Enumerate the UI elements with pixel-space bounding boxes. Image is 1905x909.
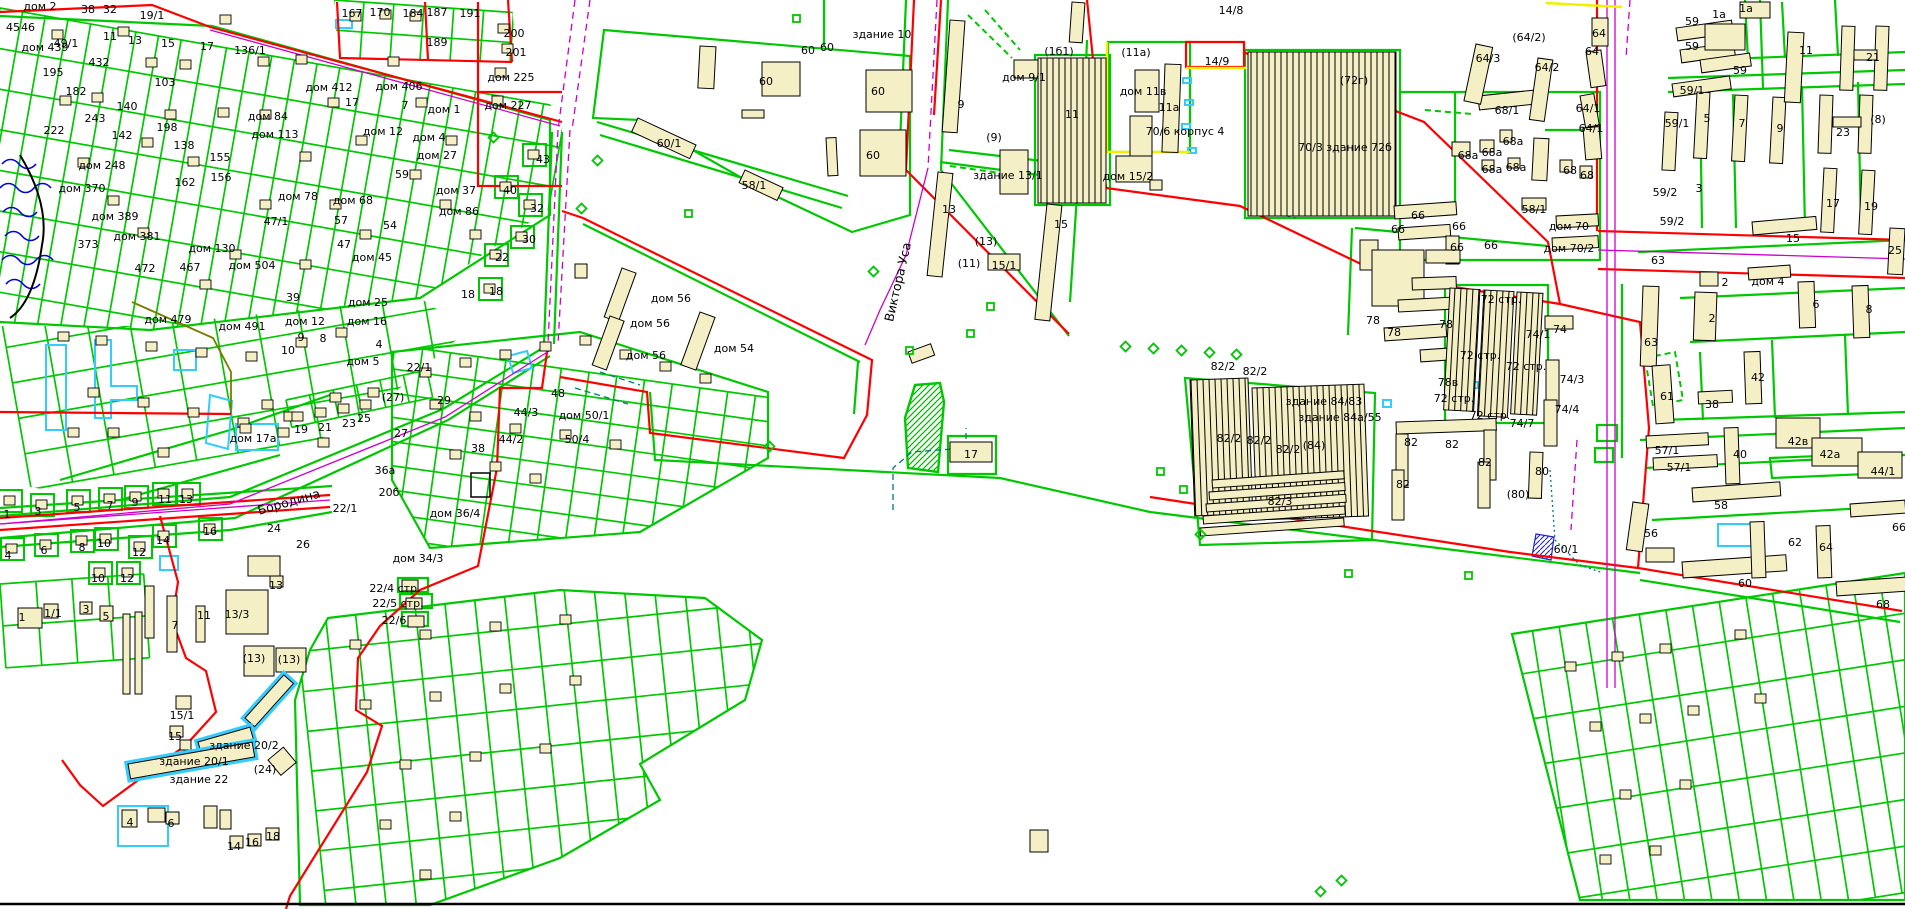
map-label: 64 — [1819, 541, 1833, 554]
building[interactable] — [1532, 138, 1549, 181]
map-label: 13 — [179, 493, 193, 506]
map-label: 155 — [210, 151, 231, 164]
map-label: 138 — [174, 139, 195, 152]
map-label: 9 — [1777, 122, 1784, 135]
map-label: 82 — [1445, 438, 1459, 451]
house[interactable] — [410, 170, 421, 179]
map-label: 74/4 — [1555, 403, 1580, 416]
map-label: 70/3 здание 72б — [1298, 141, 1392, 154]
map-label: 63 — [1651, 254, 1665, 267]
map-label: дом 504 — [228, 259, 275, 272]
house[interactable] — [380, 820, 391, 829]
house[interactable] — [220, 15, 231, 24]
map-label: 20б — [379, 486, 400, 499]
map-label: 182 — [66, 85, 87, 98]
map-label: 18 — [266, 830, 280, 843]
map-label: дом 2 — [23, 0, 56, 13]
building[interactable] — [220, 810, 231, 829]
building[interactable] — [742, 110, 764, 118]
building[interactable] — [204, 806, 217, 828]
map-label: дом 56 — [630, 317, 670, 330]
map-label: 17 — [345, 96, 359, 109]
map-label: 38 — [81, 3, 95, 16]
map-label: 19/1 — [140, 9, 165, 22]
house[interactable] — [1612, 652, 1623, 661]
house[interactable] — [470, 230, 481, 239]
map-label: 10 — [91, 572, 105, 585]
house[interactable] — [1660, 644, 1671, 653]
map-label: 14/9 — [1205, 55, 1230, 68]
map-label: 17 — [964, 448, 978, 461]
house[interactable] — [470, 412, 481, 421]
map-label: дом 248 — [78, 159, 125, 172]
house[interactable] — [92, 93, 103, 102]
house[interactable] — [258, 57, 269, 66]
house[interactable] — [88, 388, 99, 397]
building[interactable] — [135, 612, 142, 694]
map-label: 61 — [1660, 390, 1674, 403]
house[interactable] — [138, 398, 149, 407]
map-label: 191 — [460, 7, 481, 20]
house[interactable] — [530, 474, 541, 483]
house[interactable] — [158, 448, 169, 457]
house[interactable] — [188, 408, 199, 417]
map-label: 59/2 — [1653, 186, 1678, 199]
map-label: 189 — [427, 36, 448, 49]
building[interactable] — [1694, 92, 1710, 159]
map-label: 21 — [1866, 51, 1880, 64]
map-label: 9 — [298, 331, 305, 344]
map-label: дом 412 — [305, 81, 352, 94]
map-label: 14 — [156, 534, 170, 547]
map-label: 170 — [370, 6, 391, 19]
map-label: 22/1 — [407, 361, 432, 374]
house[interactable] — [360, 700, 371, 709]
map-label: 68 — [1876, 598, 1890, 611]
map-label: 59 — [1733, 64, 1747, 77]
map-label: 21 — [318, 421, 332, 434]
house[interactable] — [278, 428, 289, 437]
house[interactable] — [315, 408, 326, 417]
map-label: 11 — [103, 30, 117, 43]
map-label: 36а — [375, 464, 396, 477]
house[interactable] — [1755, 694, 1766, 703]
map-label: 68 — [1563, 164, 1577, 177]
map-label: 64 — [1585, 45, 1599, 58]
building[interactable] — [1398, 297, 1451, 312]
house[interactable] — [450, 812, 461, 821]
map-label: 42в — [1788, 435, 1808, 448]
map-label: 142 — [112, 129, 133, 142]
map-label: здание 22 — [170, 773, 229, 786]
house[interactable] — [300, 260, 311, 269]
map-label: 22 — [495, 251, 509, 264]
house[interactable] — [260, 200, 271, 209]
map-label: здание 20/1 — [159, 755, 229, 768]
house[interactable] — [188, 157, 199, 166]
map-label: 40 — [503, 184, 517, 197]
house[interactable] — [146, 58, 157, 67]
map-label: дом 12 — [285, 315, 325, 328]
map-label: 22/1 — [333, 502, 358, 515]
map-label: 59 — [1685, 40, 1699, 53]
map-label: 12 — [120, 572, 134, 585]
map-label: дом 70 — [1549, 220, 1589, 233]
map-label: 64/1 — [1576, 102, 1601, 115]
map-label: 60 — [801, 44, 815, 57]
map-label: 63 — [1644, 336, 1658, 349]
map-label: 17 — [200, 40, 214, 53]
house[interactable] — [580, 336, 591, 345]
map-label: (24) — [254, 763, 277, 776]
map-label: 5 — [1704, 112, 1711, 125]
map-label: дом 370 — [58, 182, 105, 195]
house[interactable] — [360, 400, 371, 409]
map-label: (13) — [975, 235, 998, 248]
house[interactable] — [490, 622, 501, 631]
building[interactable] — [1840, 26, 1855, 90]
house[interactable] — [165, 110, 176, 119]
house[interactable] — [1565, 662, 1576, 671]
house[interactable] — [218, 108, 229, 117]
map-label: дом 17а — [230, 432, 277, 445]
map-label: 6 — [168, 817, 175, 830]
map-label: (11а) — [1121, 46, 1150, 59]
map-label: 72 стр. — [1481, 293, 1521, 306]
map-label: 66 — [1892, 521, 1905, 534]
house[interactable] — [58, 332, 69, 341]
house[interactable] — [610, 440, 621, 449]
map-label: дом 50/1 — [559, 409, 610, 422]
map-label: 3 — [1696, 182, 1703, 195]
map-label: дом 4 — [1751, 275, 1784, 288]
map-label: здание 10 — [853, 28, 912, 41]
map-label: 74/7 — [1510, 417, 1535, 430]
cadastral-map[interactable]: дом 2383219/1454611131517136/1дом 43949/… — [0, 0, 1905, 909]
map-label: (27) — [382, 391, 405, 404]
map-label: 49/1 — [54, 37, 79, 50]
map-label: 195 — [43, 66, 64, 79]
map-label: 25 — [357, 412, 371, 425]
map-label: (64/2) — [1512, 31, 1545, 44]
building[interactable] — [1750, 522, 1766, 578]
house[interactable] — [68, 428, 79, 437]
map-label: дом 16 — [347, 315, 387, 328]
house[interactable] — [1590, 722, 1601, 731]
map-label: дом 86 — [439, 205, 479, 218]
house[interactable] — [430, 692, 441, 701]
house[interactable] — [146, 342, 157, 351]
map-label: здание 13/1 — [973, 169, 1043, 182]
map-label: дом 56 — [626, 349, 666, 362]
house[interactable] — [296, 55, 307, 64]
map-label: 70/6 корпус 4 — [1146, 125, 1225, 138]
map-label: 60 — [820, 41, 834, 54]
house[interactable] — [336, 328, 347, 337]
map-label: дом 37 — [436, 184, 476, 197]
map-label: 66 — [1450, 241, 1464, 254]
map-label: здание 84а/55 — [1298, 411, 1381, 424]
map-label: 222 — [44, 124, 65, 137]
house[interactable] — [338, 404, 349, 413]
map-label: дом 78 — [278, 190, 318, 203]
map-label: 198 — [157, 121, 178, 134]
house[interactable] — [510, 424, 521, 433]
map-label: 82/2 — [1243, 365, 1268, 378]
house[interactable] — [570, 676, 581, 685]
map-label: дом 130 — [188, 242, 235, 255]
map-label: 78 — [1387, 326, 1401, 339]
map-label: 184 — [403, 7, 424, 20]
map-label: 56 — [1644, 527, 1658, 540]
house[interactable] — [1688, 706, 1699, 715]
building[interactable] — [148, 808, 165, 822]
map-label: 68а — [1458, 149, 1479, 162]
map-label: дом 1 — [427, 103, 460, 116]
map-label: 15 — [168, 730, 182, 743]
house[interactable] — [350, 640, 361, 649]
map-label: дом 36/4 — [430, 507, 481, 520]
house[interactable] — [420, 630, 431, 639]
map-label: 32 — [103, 3, 117, 16]
map-label: (1б1) — [1044, 45, 1073, 58]
map-label: 23 — [342, 417, 356, 430]
map-label: 14/8 — [1219, 4, 1244, 17]
house[interactable] — [450, 450, 461, 459]
building[interactable] — [1818, 95, 1833, 153]
house[interactable] — [1735, 630, 1746, 639]
building[interactable] — [1640, 286, 1659, 367]
map-label: дом 15/2 — [1103, 170, 1154, 183]
house[interactable] — [1680, 780, 1691, 789]
map-label: 50/4 — [565, 433, 590, 446]
house[interactable] — [368, 388, 379, 397]
house[interactable] — [540, 342, 551, 351]
map-label: 40 — [1733, 448, 1747, 461]
house[interactable] — [246, 352, 257, 361]
map-label: 13 — [942, 203, 956, 216]
map-label: здание 20/2 — [209, 739, 279, 752]
house[interactable] — [1640, 714, 1651, 723]
map-label: 16 — [203, 525, 217, 538]
house[interactable] — [540, 744, 551, 753]
house[interactable] — [446, 136, 457, 145]
building[interactable] — [698, 46, 716, 89]
house[interactable] — [500, 350, 511, 359]
map-label: 23 — [1836, 126, 1850, 139]
map-label: 5 — [74, 501, 81, 514]
map-label: 140 — [117, 100, 138, 113]
map-label: 7 — [1739, 117, 1746, 130]
house[interactable] — [400, 760, 411, 769]
map-label: (80) — [1507, 488, 1530, 501]
map-label: 60 — [866, 149, 880, 162]
building[interactable] — [1784, 32, 1804, 103]
house[interactable] — [180, 60, 191, 69]
map-label: 187 — [427, 6, 448, 19]
building[interactable] — [1705, 24, 1745, 50]
map-label: 22/6 — [382, 614, 407, 627]
map-label: дом 4 — [412, 131, 445, 144]
building[interactable] — [1700, 272, 1718, 286]
house[interactable] — [108, 196, 119, 205]
map-label: 74/1 — [1526, 328, 1551, 341]
map-label: 80 — [1535, 465, 1549, 478]
map-label: дом 225 — [487, 71, 534, 84]
map-label: 201 — [506, 46, 527, 59]
map-label: 72 стр. — [1434, 392, 1474, 405]
building[interactable] — [1646, 548, 1674, 562]
house[interactable] — [490, 462, 501, 471]
map-label: дом 12 — [363, 125, 403, 138]
building[interactable] — [1030, 830, 1048, 852]
map-label: 1а — [1712, 8, 1726, 21]
map-label: 3 — [35, 505, 42, 518]
map-label: 8 — [79, 541, 86, 554]
map-label: 64/3 — [1476, 52, 1501, 65]
map-label: 4 — [376, 338, 383, 351]
building[interactable] — [176, 696, 191, 709]
house[interactable] — [196, 348, 207, 357]
map-label: 103 — [155, 76, 176, 89]
house[interactable] — [108, 428, 119, 437]
house[interactable] — [142, 138, 153, 147]
house[interactable] — [560, 615, 571, 624]
map-label: 58/1 — [742, 179, 767, 192]
house[interactable] — [460, 358, 471, 367]
map-label: 68а — [1503, 135, 1524, 148]
map-label: 59/1 — [1665, 117, 1690, 130]
house[interactable] — [500, 684, 511, 693]
map-label: 22/5 стр. — [372, 597, 423, 610]
map-label: 74/3 — [1560, 373, 1585, 386]
building[interactable] — [1069, 2, 1085, 43]
map-label: 13 — [128, 34, 142, 47]
house[interactable] — [292, 412, 303, 421]
map-label: 32 — [530, 202, 544, 215]
map-label: дом 406 — [375, 80, 422, 93]
map-label: 1/1 — [44, 607, 62, 620]
building[interactable] — [408, 616, 424, 627]
house[interactable] — [4, 496, 15, 505]
house[interactable] — [700, 374, 711, 383]
map-label: 44/3 — [514, 406, 539, 419]
map-label: 15/1 — [992, 259, 1017, 272]
map-label: 3 — [83, 603, 90, 616]
house[interactable] — [470, 752, 481, 761]
building[interactable] — [145, 586, 154, 638]
house[interactable] — [1650, 846, 1661, 855]
map-label: 15 — [1054, 218, 1068, 231]
map-label: 30 — [522, 233, 536, 246]
map-label: 15/1 — [170, 709, 195, 722]
building[interactable] — [826, 137, 838, 175]
map-label: 11 — [1799, 44, 1813, 57]
map-label: 18 — [489, 285, 503, 298]
map-label: 16 — [245, 836, 259, 849]
map-label: 68а — [1506, 161, 1527, 174]
map-label: (84) — [1303, 439, 1326, 452]
map-label: 11 — [158, 493, 172, 506]
map-label: 6 — [1813, 298, 1820, 311]
map-label: дом 27 — [417, 149, 457, 162]
map-label: дом 84 — [248, 110, 288, 123]
map-label: 60 — [871, 85, 885, 98]
house[interactable] — [420, 870, 431, 879]
building[interactable] — [1546, 360, 1559, 406]
house[interactable] — [360, 230, 371, 239]
map-label: (9) — [986, 131, 1002, 144]
building[interactable] — [1038, 58, 1106, 203]
map-label: 8 — [1866, 303, 1873, 316]
map-label: 17 — [1826, 197, 1840, 210]
house[interactable] — [328, 98, 339, 107]
map-label: 13 — [269, 579, 283, 592]
building[interactable] — [123, 614, 130, 694]
map-label: 82 — [1396, 478, 1410, 491]
map-label: 25 — [1888, 244, 1902, 257]
house[interactable] — [200, 280, 211, 289]
map-label: 13/3 — [225, 608, 250, 621]
house[interactable] — [660, 362, 671, 371]
map-label: 62 — [1788, 536, 1802, 549]
house[interactable] — [318, 438, 329, 447]
map-canvas[interactable]: дом 2383219/1454611131517136/1дом 43949/… — [0, 0, 1905, 909]
selected-parcel-green[interactable] — [905, 383, 944, 472]
map-label: 72 стр. — [1506, 360, 1546, 373]
map-label: 9 — [958, 98, 965, 111]
house[interactable] — [416, 98, 427, 107]
map-label: 1 — [4, 508, 11, 521]
map-label: дом 54 — [714, 342, 754, 355]
map-label: 39 — [286, 291, 300, 304]
building[interactable] — [1248, 52, 1396, 216]
map-label: 48 — [551, 387, 565, 400]
map-label: 47 — [337, 238, 351, 251]
map-label: (8) — [1870, 113, 1886, 126]
map-label: 60 — [1738, 577, 1752, 590]
map-label: 15 — [161, 37, 175, 50]
map-label: 24 — [267, 522, 281, 535]
house[interactable] — [1620, 790, 1631, 799]
map-label: 68а — [1482, 163, 1503, 176]
map-label: 64/2 — [1535, 61, 1560, 74]
map-label: 10 — [97, 537, 111, 550]
map-label: 82 — [1478, 456, 1492, 469]
house[interactable] — [388, 57, 399, 66]
house[interactable] — [96, 336, 107, 345]
map-label: 42а — [1820, 448, 1841, 461]
map-label: 78в — [1438, 376, 1458, 389]
map-label: 82/3 — [1268, 495, 1293, 508]
house[interactable] — [1600, 855, 1611, 864]
house[interactable] — [300, 152, 311, 161]
map-label: 59 — [1685, 15, 1699, 28]
building[interactable] — [575, 264, 587, 278]
map-label: дом 68 — [333, 194, 373, 207]
map-label: 45 — [6, 21, 20, 34]
map-label: 68а — [1482, 146, 1503, 159]
map-label: 11 — [197, 609, 211, 622]
building[interactable] — [248, 556, 280, 576]
map-label: 74 — [1553, 323, 1567, 336]
house[interactable] — [330, 393, 341, 402]
map-label: 8 — [320, 332, 327, 345]
map-label: 14 — [227, 840, 241, 853]
house[interactable] — [262, 400, 273, 409]
map-label: 72 стр. — [1460, 349, 1500, 362]
map-label: 82/2 — [1211, 360, 1236, 373]
